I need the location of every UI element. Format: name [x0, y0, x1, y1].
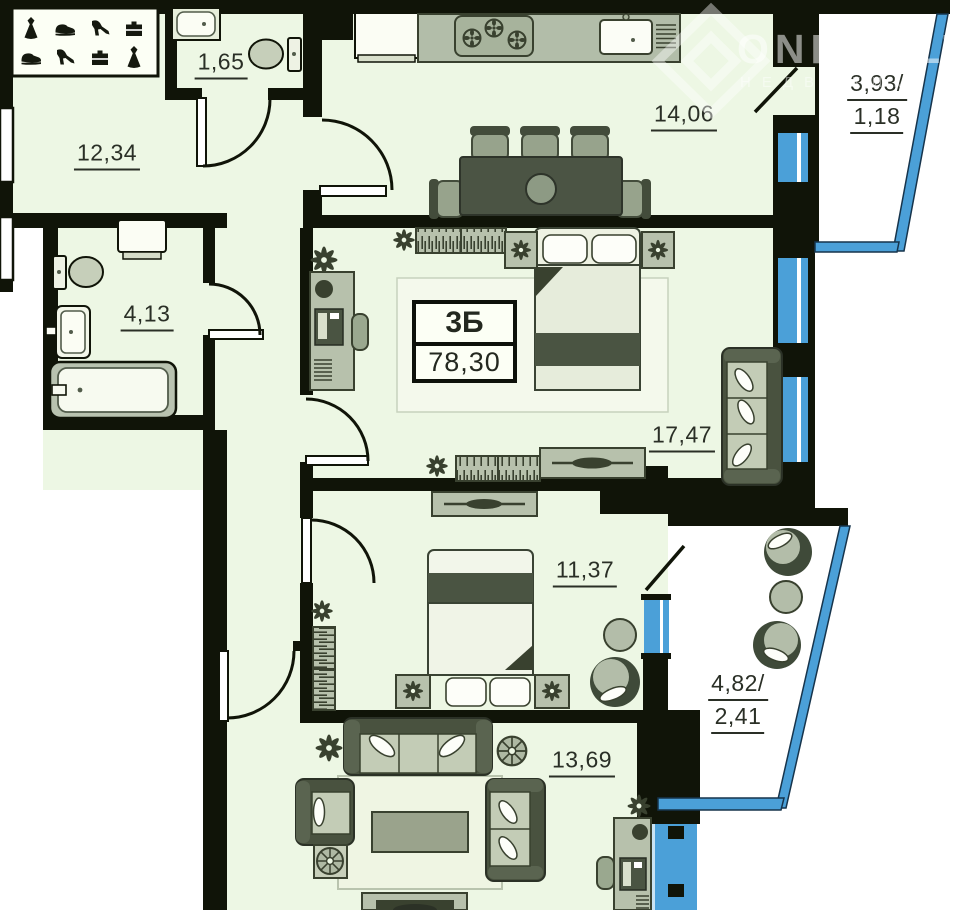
fridge-icon [355, 13, 418, 62]
toilet-icon [249, 38, 301, 71]
round-chair [753, 621, 801, 669]
loveseat [486, 779, 545, 881]
bedroom-window-upper [773, 258, 815, 343]
sink-icon [172, 2, 220, 40]
unit-info-box: 3Б 78,30 [412, 300, 517, 383]
hallway-area-label: 12,34 [74, 140, 140, 171]
kitchen-area-label: 14,06 [651, 101, 717, 132]
wardrobe-bottom [456, 456, 540, 481]
double-bed [535, 228, 640, 390]
coffee-table [372, 812, 468, 852]
wardrobe-top [416, 228, 506, 253]
toilet-icon [53, 256, 103, 289]
washing-machine-icon [118, 220, 166, 259]
floor-plan-page: 12,34 1,65 14,06 3,93/ 1,18 4,13 17,47 1… [0, 0, 962, 910]
armchair [296, 779, 354, 845]
living-room-window [648, 824, 697, 910]
bathroom-area-label: 4,13 [121, 301, 174, 332]
tv-console [432, 492, 537, 516]
bathtub-icon [50, 362, 176, 418]
sofa-horizontal [344, 718, 492, 775]
floor-plan-drawing [0, 0, 962, 910]
tv-console [362, 893, 467, 910]
round-armchair [590, 657, 640, 707]
second-bedroom-area-label: 11,37 [553, 557, 617, 588]
stove-burners-icon [455, 16, 533, 56]
living-room-area-label: 13,69 [549, 747, 615, 778]
sofa-vertical [722, 348, 782, 485]
round-table [604, 619, 636, 651]
balcony-top-area-label: 3,93/ 1,18 [847, 70, 907, 134]
wc-area-label: 1,65 [195, 49, 248, 80]
balcony-side-area-label: 4,82/ 2,41 [708, 670, 768, 734]
tv-console [540, 448, 645, 478]
kitchen-balcony-window [773, 133, 815, 182]
round-chair [764, 528, 812, 576]
unit-total-area: 78,30 [416, 346, 513, 379]
second-bedroom-balcony-window [644, 600, 669, 653]
master-bedroom-area-label: 17,47 [649, 422, 715, 453]
round-table [770, 581, 802, 613]
unit-type-label: 3Б [416, 304, 513, 346]
hallway-wardrobe [12, 8, 158, 76]
plant-pot-square [314, 845, 347, 878]
wardrobe-vertical [313, 627, 335, 710]
